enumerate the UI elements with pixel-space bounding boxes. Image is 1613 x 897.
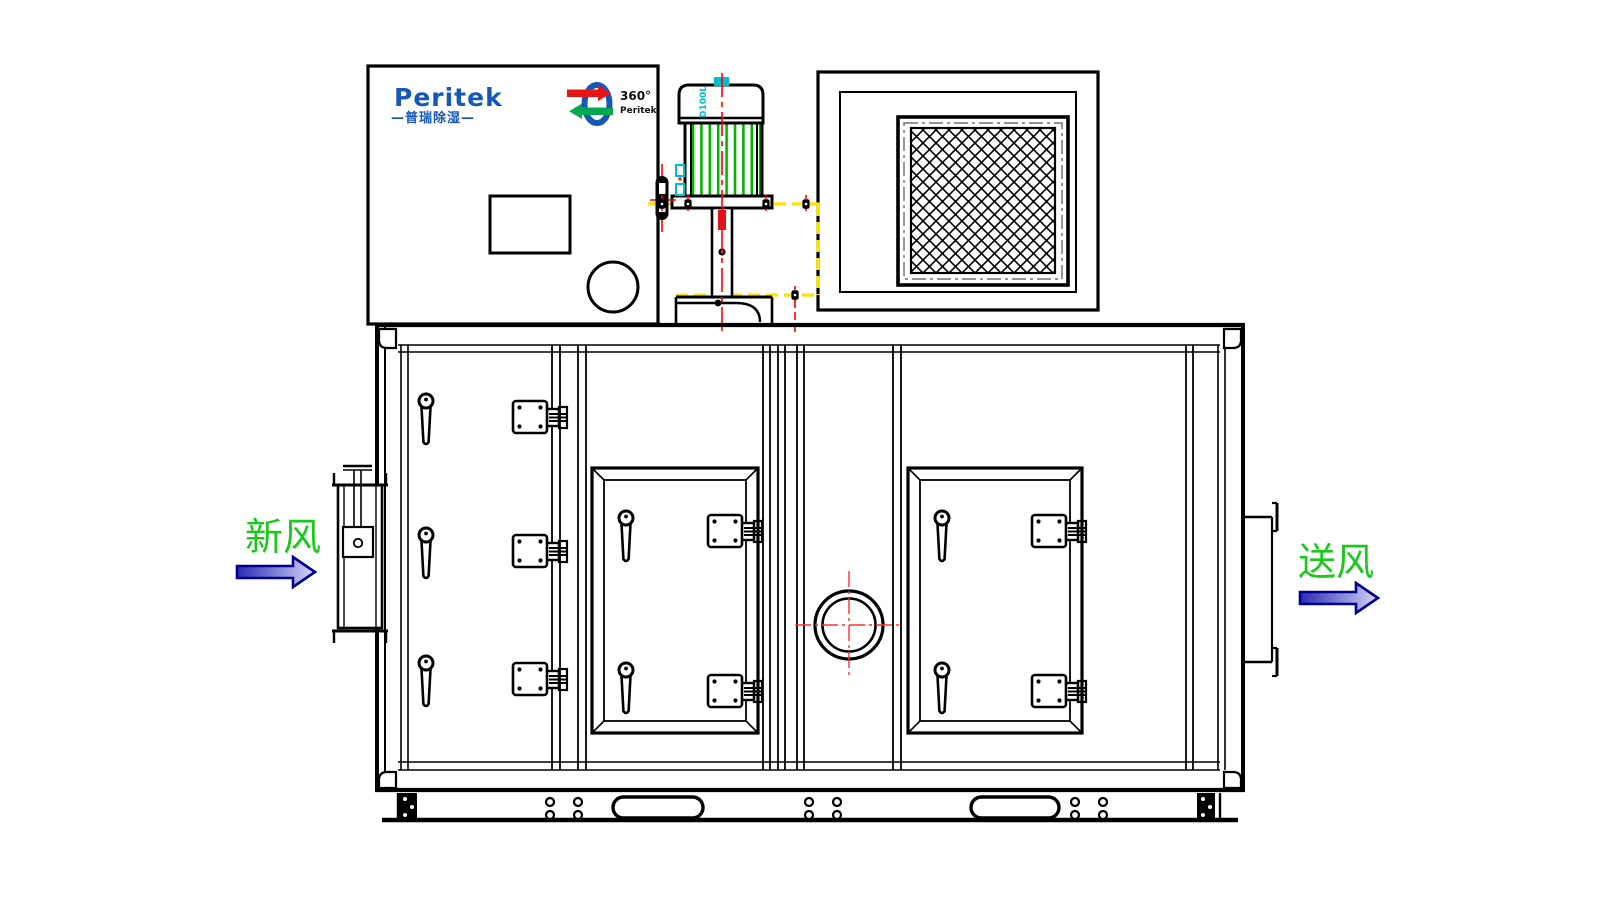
control-box-knockout (588, 262, 638, 312)
cabinet-frame (375, 325, 1245, 790)
brand-logo-text: Peritek (394, 83, 503, 112)
foot-bolt (410, 805, 414, 809)
base-foot-right (1197, 793, 1215, 821)
brand-logo-subtext: —普瑞除湿— (391, 110, 475, 126)
outlet-duct (1245, 503, 1277, 676)
drawing-canvas: Peritek —普瑞除湿— 360° Peritek (0, 0, 1613, 897)
control-box: Peritek —普瑞除湿— 360° Peritek (368, 66, 658, 324)
forklift-slot (613, 797, 703, 818)
supply-air-label: 送风 (1298, 540, 1374, 584)
base-frame (382, 793, 1238, 821)
motor-stand (676, 297, 772, 323)
access-door-2 (908, 468, 1086, 733)
technical-drawing-dehumidifier-front-view: Peritek —普瑞除湿— 360° Peritek (0, 0, 1613, 897)
latch-handle (419, 656, 433, 706)
fresh-air-label: 新风 (245, 515, 321, 559)
grille-mesh (911, 128, 1055, 273)
control-panel-window (490, 196, 570, 253)
motor-model-label: D100L (699, 86, 709, 118)
emblem-brand-text: Peritek (620, 106, 658, 116)
latch-handle (419, 394, 433, 444)
inlet-duct (332, 466, 388, 643)
foot-bolt (403, 813, 407, 817)
emblem-degrees-text: 360° (620, 89, 651, 103)
forklift-slot (971, 797, 1059, 818)
sight-glass (795, 571, 903, 679)
door-hinge (513, 535, 567, 567)
belt-guard-hidden-outline (648, 204, 820, 295)
fresh-air-arrow-icon (237, 557, 315, 587)
door-hinge (513, 401, 567, 433)
anchor-bolt (791, 286, 798, 304)
motor-body-fins (685, 123, 762, 198)
access-door-1 (592, 468, 762, 733)
foot-bolt (1208, 805, 1212, 809)
foot-bolt (403, 797, 407, 801)
corner-gussets (379, 329, 1241, 788)
door-hinge (513, 663, 567, 695)
motor-assembly: D100L (648, 73, 820, 333)
foot-bolt (1201, 813, 1205, 817)
inspection-grille-box (818, 72, 1098, 310)
supply-air-arrow-icon (1300, 583, 1378, 613)
base-foot-left (399, 793, 417, 821)
access-panel-left (419, 394, 567, 706)
latch-handle (419, 528, 433, 578)
anchor-bolt (802, 195, 809, 213)
foot-bolt (1201, 797, 1205, 801)
